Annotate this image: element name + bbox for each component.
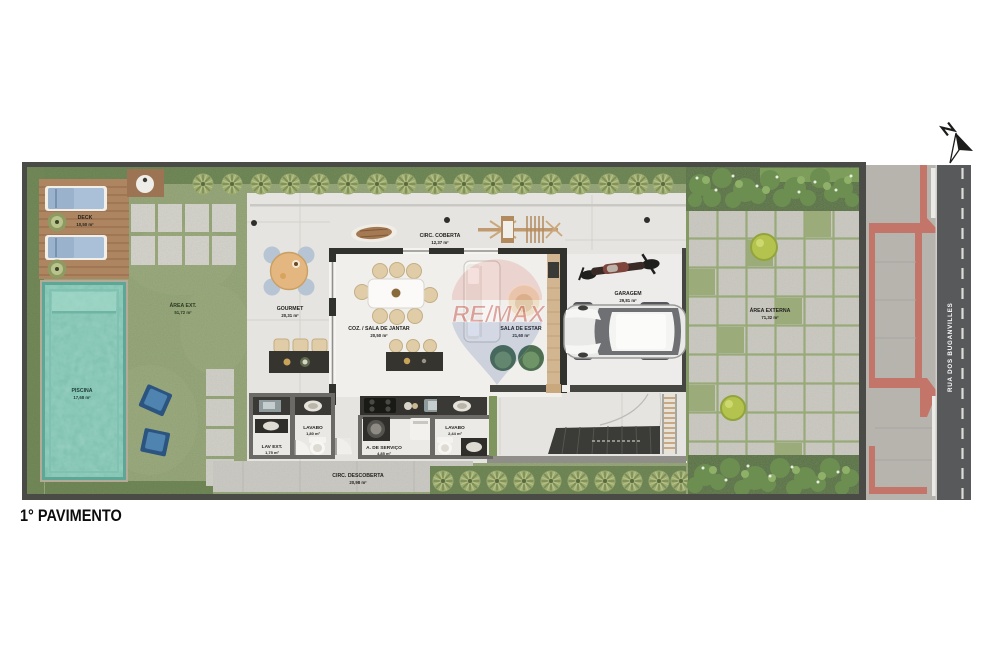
svg-text:17,68 m²: 17,68 m²: [73, 395, 91, 400]
svg-text:RE/MAX: RE/MAX: [452, 301, 547, 328]
svg-text:71,32 m²: 71,32 m²: [761, 315, 779, 320]
svg-text:GARAGEM: GARAGEM: [614, 291, 641, 297]
svg-text:2,44 m²: 2,44 m²: [448, 431, 462, 436]
svg-text:ÁREA EXT.: ÁREA EXT.: [170, 302, 197, 309]
svg-text:DECK: DECK: [78, 215, 93, 221]
svg-text:4,85 m²: 4,85 m²: [377, 451, 391, 456]
svg-text:RUA DOS BUGANVILLES: RUA DOS BUGANVILLES: [947, 302, 954, 392]
svg-text:1,80 m²: 1,80 m²: [306, 431, 320, 436]
svg-text:51,72 m²: 51,72 m²: [174, 310, 192, 315]
svg-text:20,98 m²: 20,98 m²: [349, 480, 367, 485]
svg-text:CIRC. COBERTA: CIRC. COBERTA: [420, 233, 461, 239]
svg-text:20,31 m²: 20,31 m²: [281, 313, 299, 318]
svg-text:1° PAVIMENTO: 1° PAVIMENTO: [20, 507, 122, 525]
svg-text:PISCINA: PISCINA: [71, 388, 92, 394]
svg-text:ÁREA EXTERNA: ÁREA EXTERNA: [750, 307, 791, 314]
svg-text:29,81 m²: 29,81 m²: [619, 298, 637, 303]
svg-text:20,50 m²: 20,50 m²: [370, 333, 388, 338]
svg-text:12,37 m²: 12,37 m²: [431, 240, 449, 245]
svg-text:GOURMET: GOURMET: [277, 306, 304, 312]
svg-text:COZ. / SALA DE JANTAR: COZ. / SALA DE JANTAR: [348, 326, 410, 332]
svg-text:1,75 m²: 1,75 m²: [265, 450, 279, 455]
svg-text:CIRC. DESCOBERTA: CIRC. DESCOBERTA: [332, 473, 384, 479]
svg-text:10,50 m²: 10,50 m²: [76, 222, 94, 227]
